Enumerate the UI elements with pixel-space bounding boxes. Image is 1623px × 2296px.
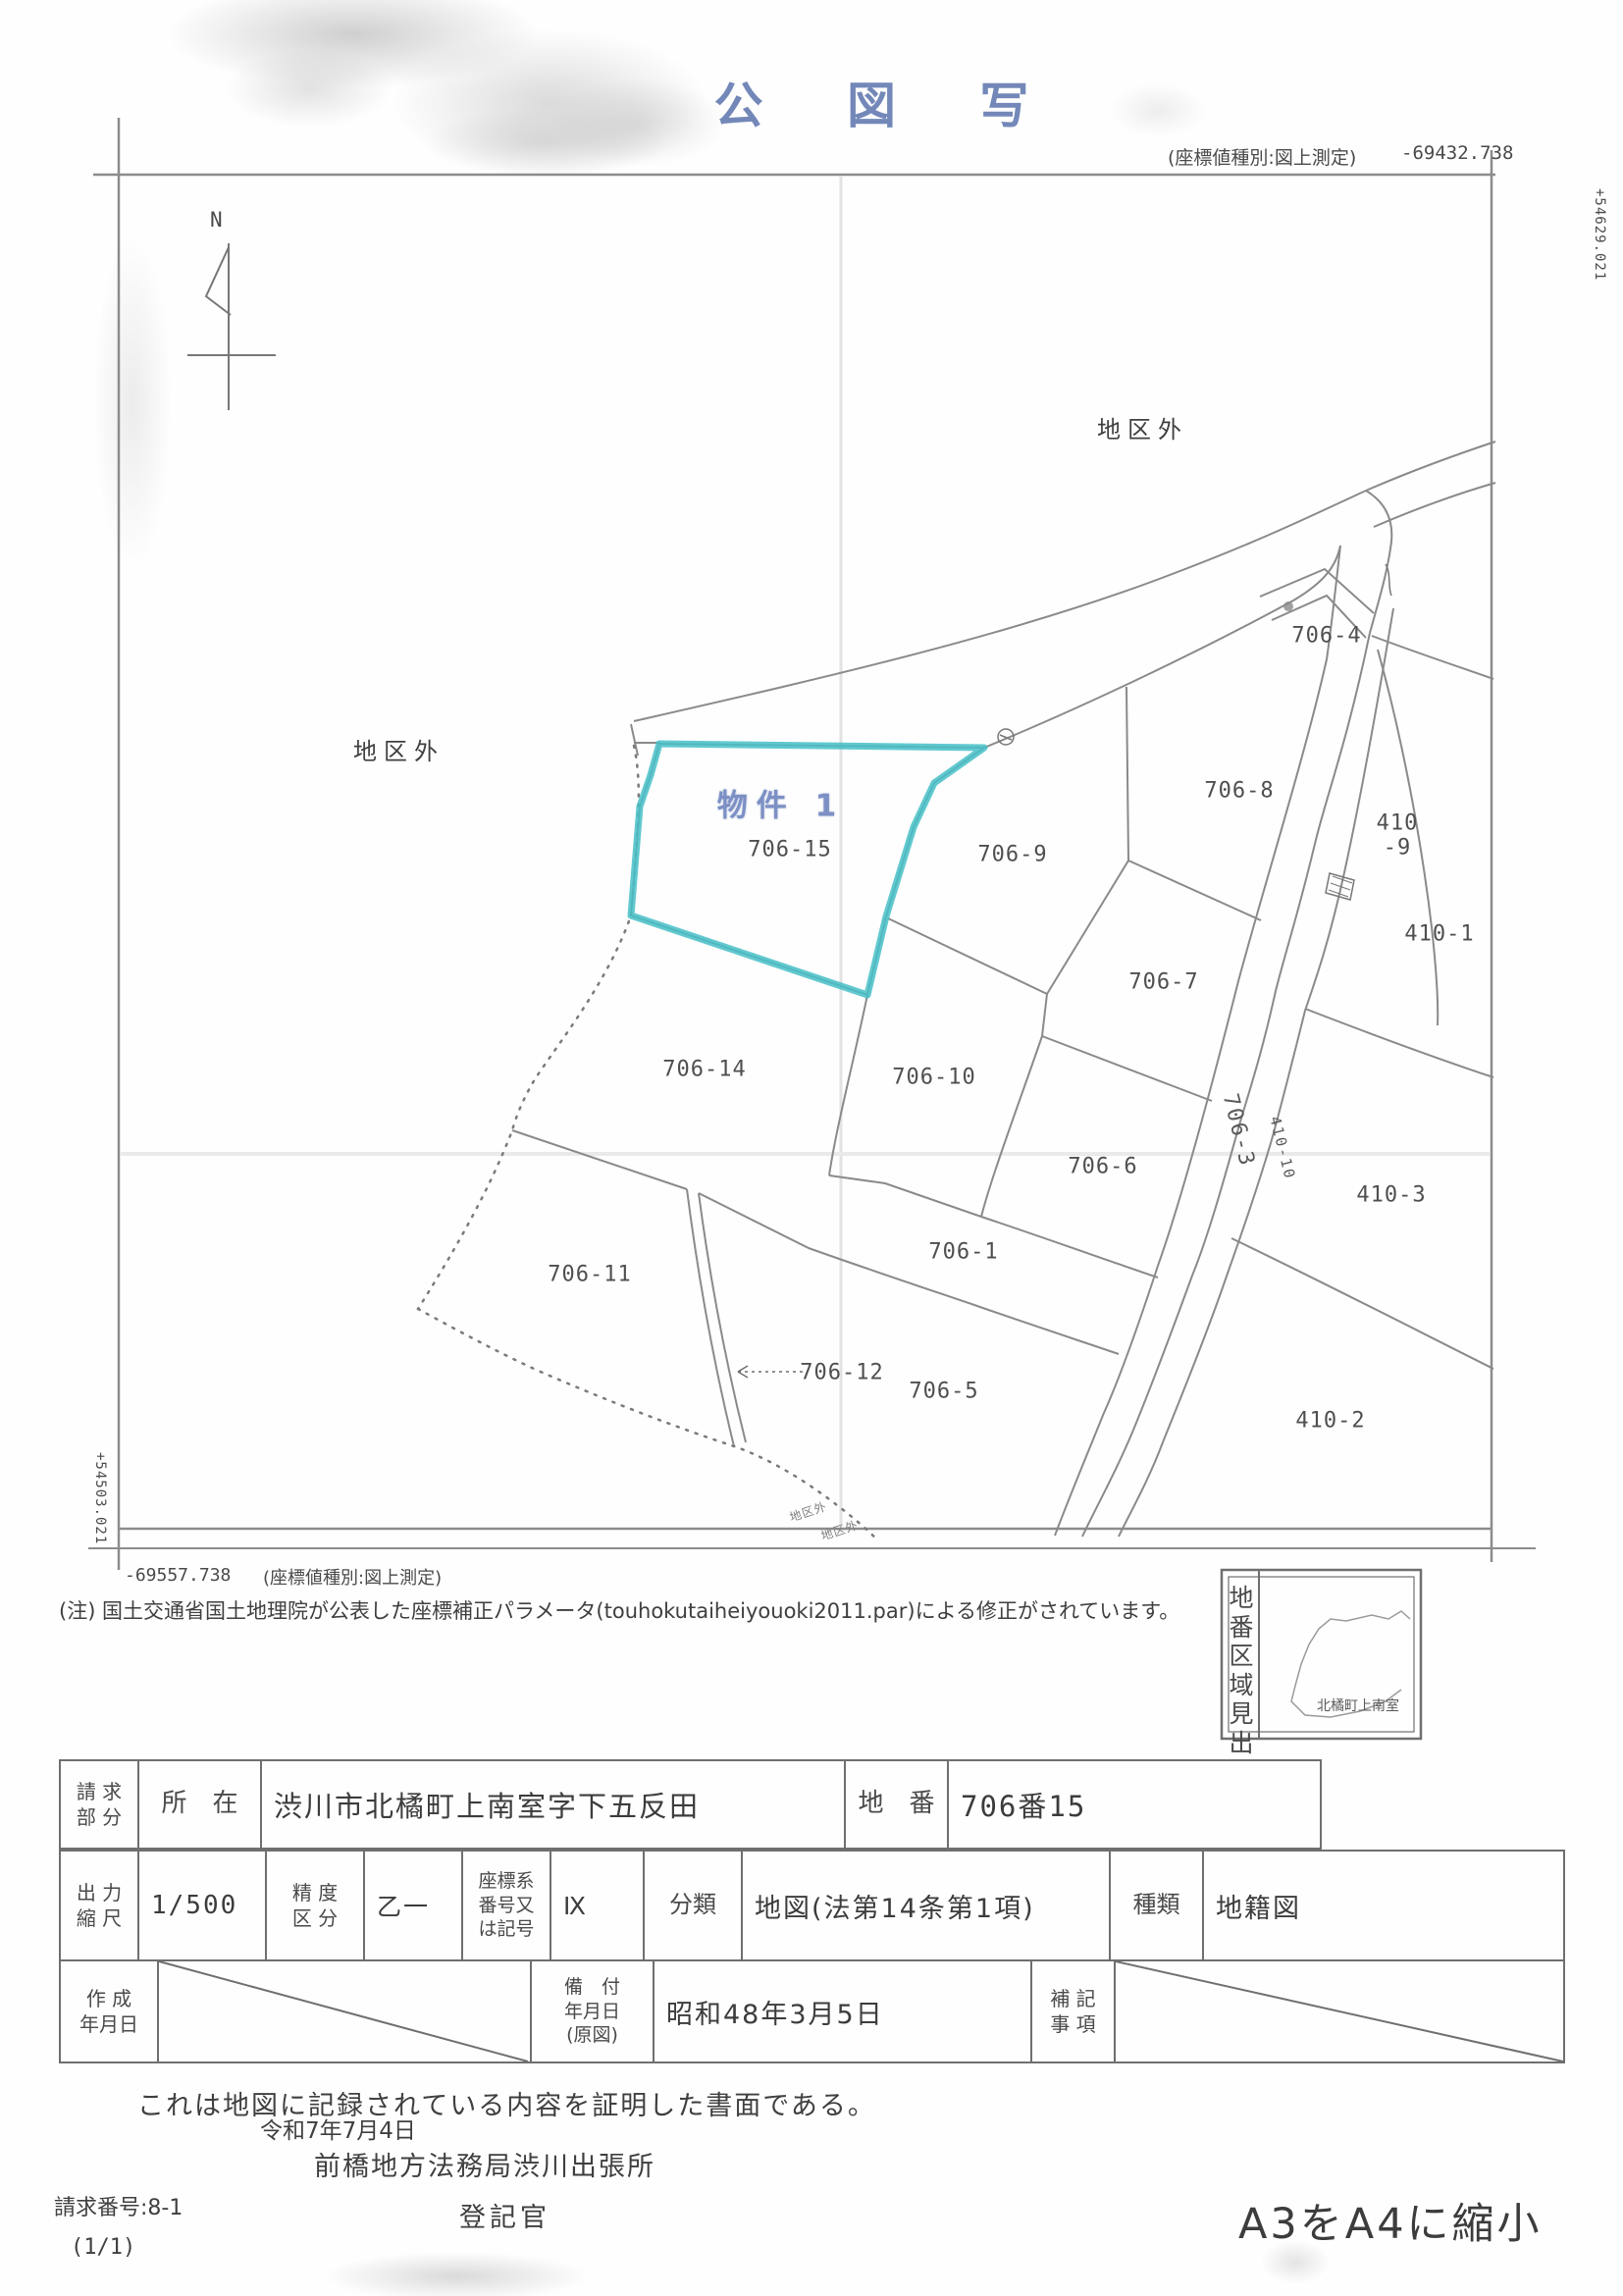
parcel-label-706-5: 706-5 (909, 1379, 978, 1403)
parcel-label-410-1: 410-1 (1404, 921, 1474, 946)
request-number: 請求番号:8-1 (54, 2190, 183, 2221)
table-precision-label: 精 度 区 分 (265, 1850, 365, 1961)
reduction-note: A3をA4に縮小 (1238, 2190, 1543, 2251)
correction-note: (注) 国土交通省国土地理院が公表した座標補正パラメータ(touhokutaih… (59, 1595, 1179, 1625)
table-scale-value: 1/500 (137, 1850, 267, 1961)
outside-district-label: 地区外 (353, 732, 445, 766)
locator-place-label: 北橘町上南室 (1317, 1696, 1399, 1715)
parcel-label-706-9: 706-9 (977, 842, 1047, 866)
table-classification-label: 分類 (643, 1850, 743, 1961)
table-request-section-label: 請 求 部 分 (59, 1759, 139, 1850)
outside-district-label: 地区外 (1097, 410, 1188, 444)
north-label: N (210, 208, 223, 232)
parcel-label-410-2: 410-2 (1295, 1408, 1365, 1433)
parcel-label-706-11: 706-11 (548, 1262, 631, 1286)
table-parcel-number-value: 706番15 (947, 1759, 1322, 1850)
district-boundary-dotted (418, 746, 876, 1539)
table-remarks-empty (1114, 1959, 1565, 2063)
north-arrow-icon (187, 243, 276, 410)
table-kind-label: 種類 (1109, 1850, 1204, 1961)
table-created-date-label: 作 成 年月日 (59, 1959, 159, 2063)
parcel-label-706-4: 706-4 (1291, 623, 1361, 648)
locator-box-title: 地番 区域 見出 (1226, 1584, 1257, 1757)
coord-value-bottom: -69557.738 (125, 1565, 231, 1586)
scanned-cadastral-document: 公 図 写 (座標値種別:図上測定) -69432.738 +54629.021… (0, 0, 1623, 2296)
parcel-label-706-1: 706-1 (928, 1239, 998, 1264)
issue-date: 令和7年7月4日 (260, 2112, 416, 2145)
table-created-date-empty (157, 1959, 532, 2063)
document-title: 公 図 写 (714, 67, 1063, 137)
parcel-label-706-8: 706-8 (1204, 778, 1274, 803)
issuing-office: 前橋地方法務局渋川出張所 (314, 2145, 655, 2183)
table-scale-label: 出 力 縮 尺 (59, 1850, 139, 1961)
parcel-label-706-15: 706-15 (748, 837, 831, 861)
table-location-label: 所 在 (137, 1759, 262, 1850)
coord-value-right: +54629.021 (1592, 188, 1607, 281)
parcel-boundaries (512, 636, 1493, 1446)
request-page: (1/1) (71, 2235, 135, 2260)
coord-value-left: +54503.021 (92, 1452, 108, 1544)
table-kind-value: 地籍図 (1202, 1850, 1565, 1961)
coord-type-note-top: (座標値種別:図上測定) (1168, 143, 1356, 170)
listing-property-stamp: 物件 1 (717, 781, 845, 825)
parcel-label-706-12: 706-12 (800, 1360, 883, 1384)
parcel-label-410-3: 410-3 (1356, 1182, 1426, 1207)
table-remarks-label: 補 記 事 項 (1030, 1959, 1116, 2063)
parcel-label-706-10: 706-10 (892, 1065, 975, 1089)
registrar-title: 登記官 (459, 2196, 550, 2234)
parcel-label-410-9: 410 -9 (1377, 811, 1419, 861)
table-coordsys-label: 座標系 番号又 は記号 (461, 1850, 551, 1961)
table-location-value: 渋川市北橘町上南室字下五反田 (260, 1759, 846, 1850)
table-precision-value: 乙一 (363, 1850, 463, 1961)
table-parcel-number-label: 地 番 (844, 1759, 949, 1850)
parcel-label-706-14: 706-14 (662, 1057, 746, 1081)
table-coordsys-value: Ⅸ (550, 1850, 645, 1961)
table-filed-date-label: 備 付 年月日 (原図) (530, 1959, 654, 2063)
table-filed-date-value: 昭和48年3月5日 (653, 1959, 1032, 2063)
parcel-label-706-6: 706-6 (1068, 1154, 1137, 1178)
coord-value-top: -69432.738 (1401, 142, 1513, 164)
coord-type-note-bottom: (座標値種別:図上測定) (263, 1564, 442, 1590)
table-classification-value: 地図(法第14条第1項) (741, 1850, 1111, 1961)
certification-statement: これは地図に記録されている内容を証明した書面である。 (137, 2084, 876, 2122)
parcel-label-706-7: 706-7 (1128, 969, 1198, 994)
parcel-706-12-leader (738, 1366, 803, 1378)
